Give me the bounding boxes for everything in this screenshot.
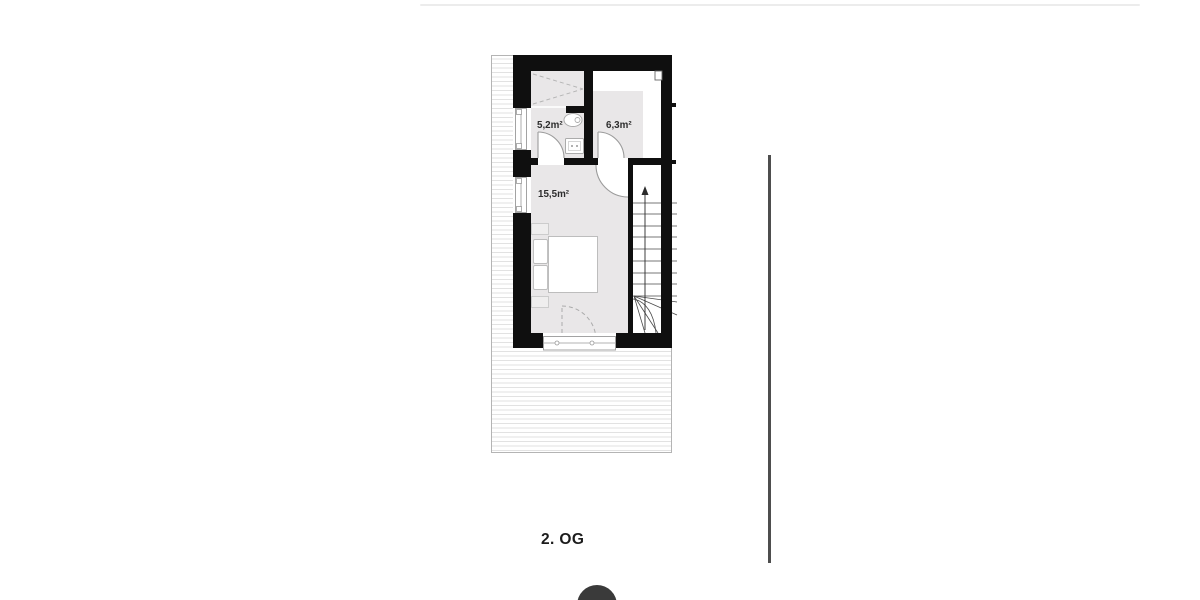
floorplan-drawing: 5,2m² 6,3m² 15,5m²: [0, 0, 1200, 600]
wall-divider-bath: [584, 71, 593, 158]
pillow-top: [534, 240, 548, 264]
wall-shower-stub: [566, 106, 584, 113]
mattress: [549, 237, 598, 293]
toilet-icon: [564, 114, 582, 127]
window-bottom-icon: [543, 335, 616, 351]
wall-stair-side: [628, 165, 633, 333]
floor-level-label: 2. OG: [541, 531, 584, 549]
bathroom-area-label: 5,2m²: [537, 120, 563, 131]
window-left-bottom-icon: [514, 177, 529, 213]
wall-corridor-a: [531, 158, 538, 165]
wall-left-3: [513, 213, 531, 333]
sink-icon: [566, 139, 584, 154]
wall-niche-notch: [655, 71, 662, 80]
wall-top: [513, 55, 672, 71]
wall-right: [661, 71, 672, 333]
bedroom-area-label: 15,5m²: [538, 189, 570, 200]
wall-corridor-c: [628, 158, 661, 165]
window-left-top-icon: [514, 108, 529, 150]
wall-joint-tick-1: [672, 103, 676, 107]
pillow-bottom: [534, 266, 548, 290]
nightstand-bottom: [532, 297, 549, 308]
nightstand-top: [532, 224, 549, 235]
page-canvas: 5,2m² 6,3m² 15,5m² 2. OG: [0, 0, 1200, 600]
wall-left-2: [513, 150, 531, 177]
right-scroll-line: [768, 155, 771, 563]
stair-up-arrow-icon: [642, 186, 649, 195]
wall-bottom-right: [616, 333, 672, 348]
wall-corridor-b: [564, 158, 598, 165]
wall-left-1: [513, 55, 531, 108]
wall-bottom-left: [513, 333, 543, 348]
wall-joint-tick-2: [672, 160, 676, 164]
small-room-area-label: 6,3m²: [606, 120, 632, 131]
